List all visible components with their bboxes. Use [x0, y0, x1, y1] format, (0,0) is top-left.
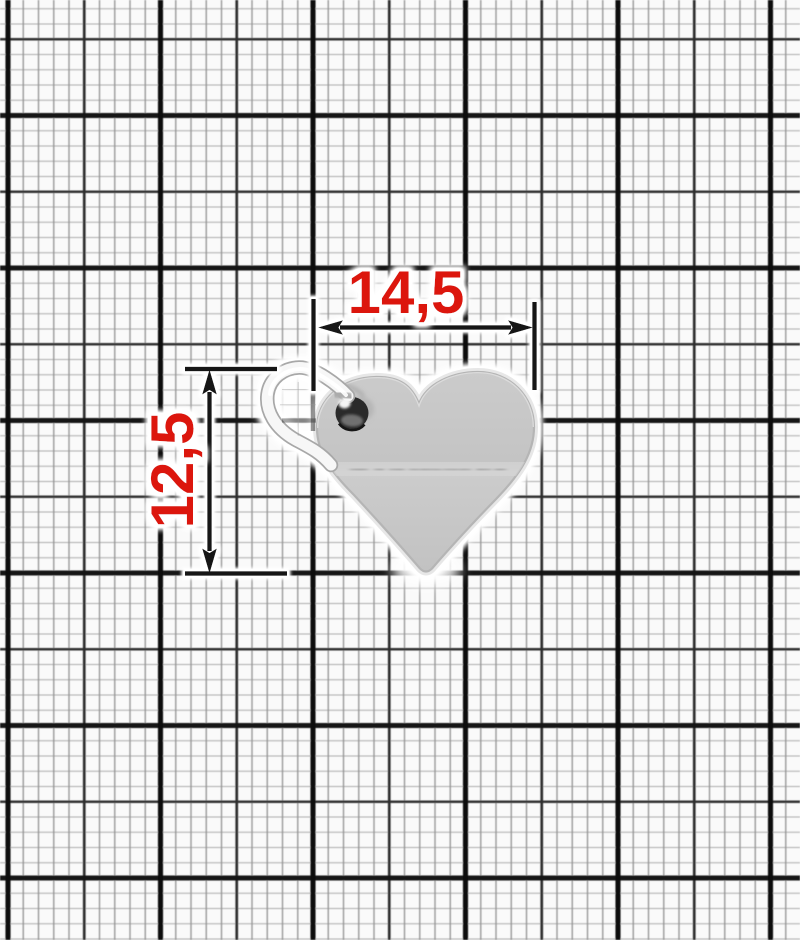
svg-text:12,5: 12,5	[139, 412, 206, 529]
svg-text:14,5: 14,5	[348, 259, 465, 326]
